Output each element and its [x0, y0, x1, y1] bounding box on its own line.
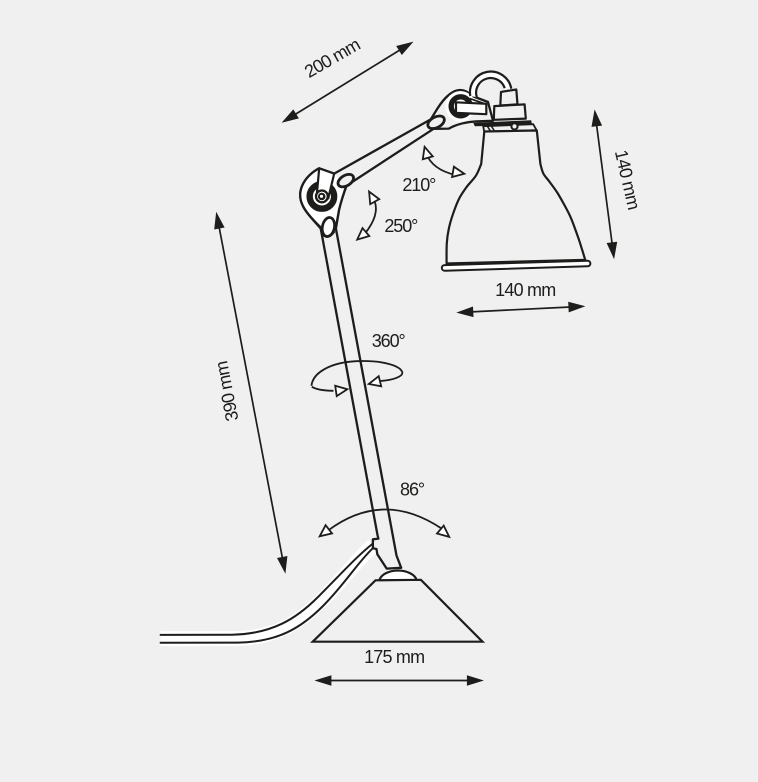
svg-text:210°: 210° [402, 175, 436, 195]
svg-text:360°: 360° [372, 331, 406, 351]
svg-text:86°: 86° [400, 479, 425, 499]
svg-text:140 mm: 140 mm [495, 280, 555, 300]
svg-text:175 mm: 175 mm [364, 647, 424, 667]
svg-text:250°: 250° [384, 216, 418, 236]
